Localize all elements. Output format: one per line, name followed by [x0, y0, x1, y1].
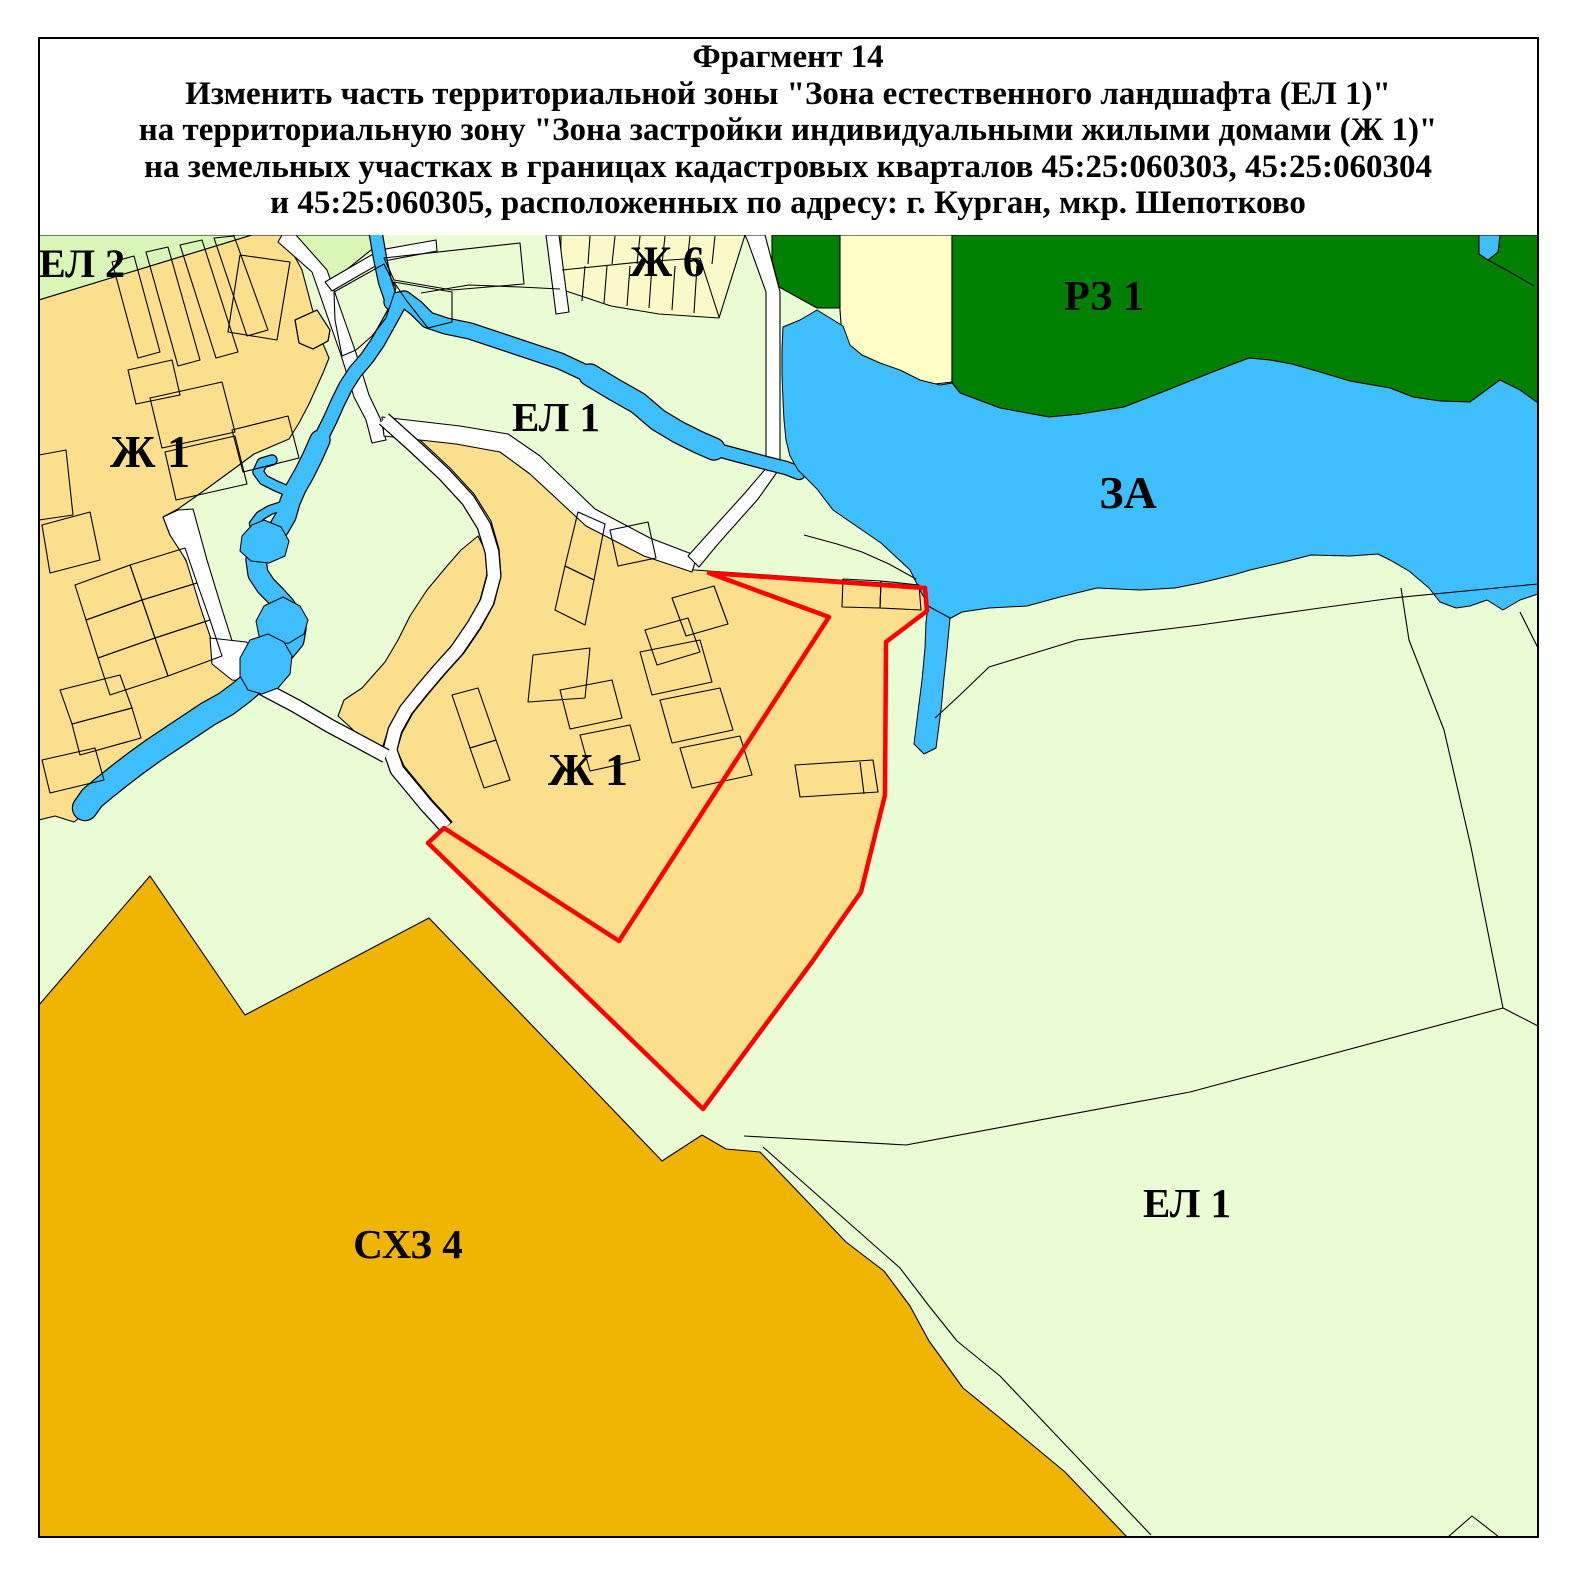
svg-text:на земельных участках в границ: на земельных участках в границах кадастр… [144, 149, 1432, 185]
svg-text:РЗ 1: РЗ 1 [1064, 274, 1144, 320]
svg-text:Ж 6: Ж 6 [630, 239, 705, 286]
svg-text:Изменить часть территориальной: Изменить часть территориальной зоны "Зон… [185, 76, 1391, 112]
svg-text:ЕЛ 2: ЕЛ 2 [39, 241, 125, 286]
svg-text:на территориальную зону "Зона: на территориальную зону "Зона застройки … [139, 112, 1438, 148]
svg-text:Ж 1: Ж 1 [110, 426, 190, 477]
svg-text:ЕЛ 1: ЕЛ 1 [512, 394, 600, 440]
svg-text:Ж 1: Ж 1 [548, 744, 628, 795]
svg-text:Фрагмент 14: Фрагмент 14 [692, 39, 883, 75]
svg-text:ЗА: ЗА [1099, 467, 1157, 518]
svg-text:СХЗ 4: СХЗ 4 [353, 1221, 463, 1267]
svg-text:ЕЛ 1: ЕЛ 1 [1143, 1180, 1231, 1226]
svg-text:и 45:25:060305, расположенных: и 45:25:060305, расположенных по адресу:… [270, 185, 1306, 221]
